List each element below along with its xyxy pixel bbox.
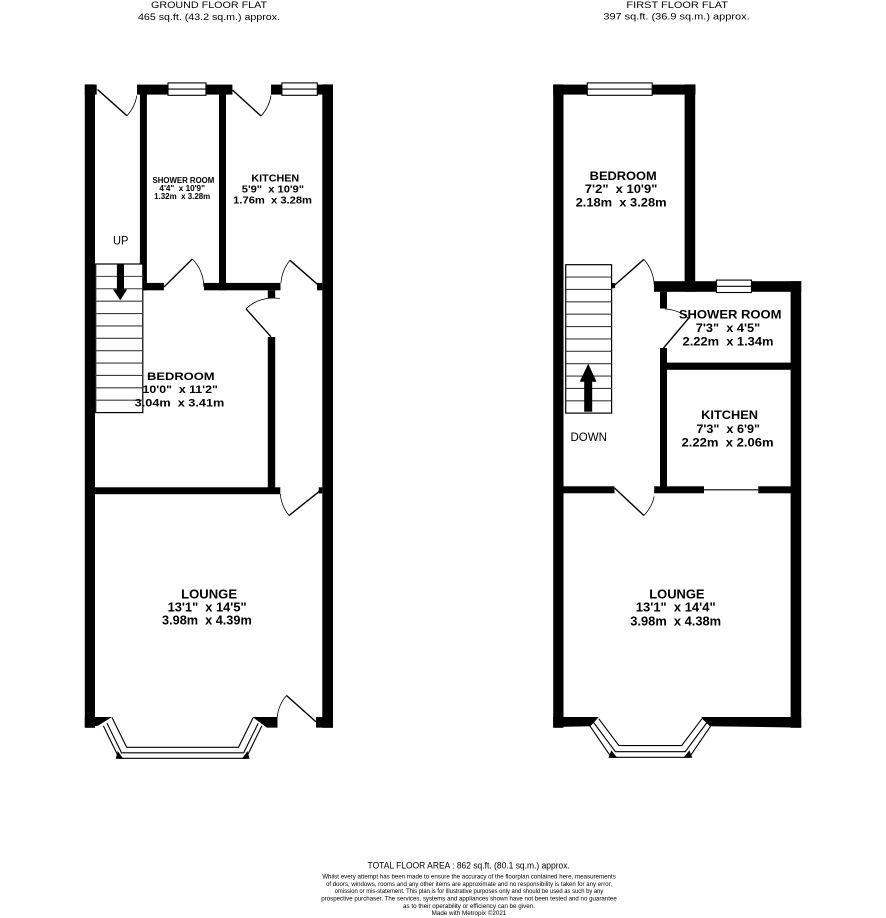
svg-text:FIRST FLOOR FLAT: FIRST FLOOR FLAT [626,0,728,11]
svg-text:10'0" x 11'2": 10'0" x 11'2" [143,384,218,396]
svg-text:DOWN: DOWN [571,430,607,444]
svg-text:2.22m x 1.34m: 2.22m x 1.34m [683,334,774,348]
svg-text:3.04m x 3.41m: 3.04m x 3.41m [135,398,225,410]
svg-text:Whilst every attempt has been: Whilst every attempt has been made to en… [322,873,616,880]
svg-text:397 sq.ft. (36.9 sq.m.) approx: 397 sq.ft. (36.9 sq.m.) approx. [603,11,749,22]
svg-text:Made with Metropix ©2021: Made with Metropix ©2021 [432,909,507,917]
svg-text:7'3" x 4'5": 7'3" x 4'5" [696,321,761,335]
svg-text:TOTAL FLOOR AREA : 862 sq.ft.: TOTAL FLOOR AREA : 862 sq.ft. (80.1 sq.m… [368,861,570,872]
svg-text:5'9" x 10'9": 5'9" x 10'9" [242,184,305,195]
svg-text:2.18m x 3.28m: 2.18m x 3.28m [576,196,667,209]
svg-text:SHOWER ROOM: SHOWER ROOM [679,307,782,321]
svg-text:prospective purchaser. The ser: prospective purchaser. The services, sys… [321,896,617,903]
svg-text:3.98m x 4.39m: 3.98m x 4.39m [162,613,252,628]
svg-text:1.32m x 3.28m: 1.32m x 3.28m [154,192,210,201]
svg-text:7'2" x 10'9": 7'2" x 10'9" [585,183,658,196]
svg-text:BEDROOM: BEDROOM [590,170,657,183]
svg-text:1.76m x 3.28m: 1.76m x 3.28m [233,195,312,206]
svg-text:UP: UP [113,234,129,248]
svg-text:of doors, windows, rooms and a: of doors, windows, rooms and any other i… [326,881,612,888]
svg-text:KITCHEN: KITCHEN [251,173,299,184]
svg-text:omission or mis-statement. Thi: omission or mis-statement. This plan is … [335,888,604,895]
svg-text:465 sq.ft. (43.2 sq.m.) approx: 465 sq.ft. (43.2 sq.m.) approx. [138,12,280,23]
svg-text:3.98m x 4.38m: 3.98m x 4.38m [630,613,721,628]
svg-text:BEDROOM: BEDROOM [147,371,215,383]
svg-text:GROUND FLOOR FLAT: GROUND FLOOR FLAT [151,0,267,11]
svg-text:2.22m x 2.06m: 2.22m x 2.06m [682,435,774,449]
svg-text:KITCHEN: KITCHEN [701,408,758,422]
svg-text:7'3" x 6'9": 7'3" x 6'9" [696,422,760,436]
svg-text:as to their operability or eff: as to their operability or efficiency ca… [403,903,535,910]
